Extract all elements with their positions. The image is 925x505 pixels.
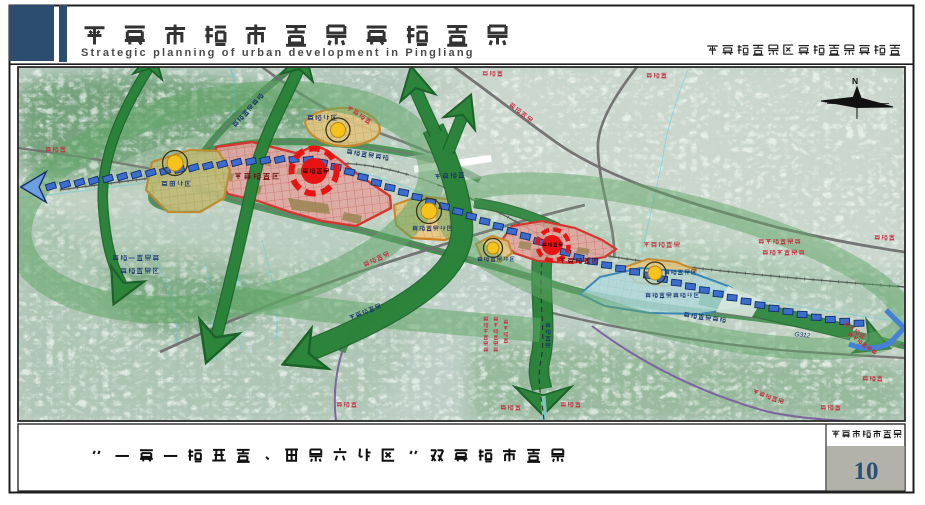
- svg-text:Strategic planning of urban de: Strategic planning of urban development …: [81, 47, 475, 59]
- svg-text:10: 10: [854, 458, 879, 485]
- svg-text:N: N: [852, 76, 858, 86]
